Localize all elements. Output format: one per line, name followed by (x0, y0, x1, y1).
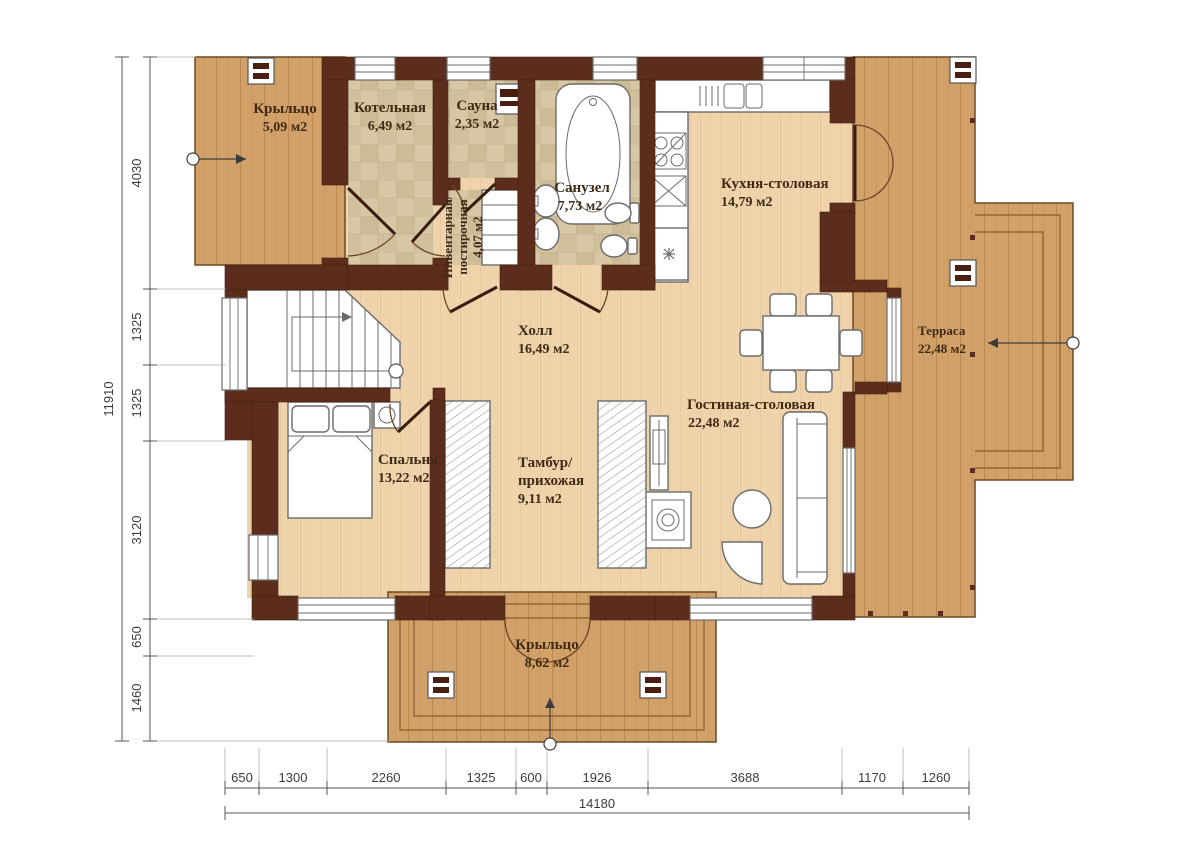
storage-shelves (482, 190, 518, 265)
dim-bottom-3: 1325 (467, 770, 496, 785)
window-bedroom-side (249, 535, 278, 580)
room-name: Котельная (354, 100, 426, 116)
wardrobe (445, 401, 490, 568)
window-dining-bay (887, 298, 901, 382)
column-marker (950, 57, 976, 83)
drying-rack (650, 416, 668, 490)
column-marker (640, 672, 666, 698)
column-marker (950, 260, 976, 286)
room-area: 5,09 м2 (263, 120, 308, 135)
room-name: Крыльцо (515, 637, 578, 653)
dim-bottom-1: 1300 (279, 770, 308, 785)
bed (288, 402, 372, 518)
room-area: 6,49 м2 (368, 119, 413, 134)
stairs-start-marker (389, 364, 403, 378)
window-living-bottom (690, 598, 812, 620)
dim-left-5: 1460 (129, 684, 144, 713)
room-area: 22,48 м2 (688, 416, 740, 431)
dim-bottom-7: 1170 (858, 770, 886, 785)
dim-bottom-5: 1926 (583, 770, 612, 785)
dining-chair (740, 330, 762, 356)
room-area: 16,49 м2 (518, 342, 570, 357)
room-name: Сауна (456, 98, 498, 114)
dim-bottom-6: 3688 (731, 770, 760, 785)
dim-bottom-0: 650 (231, 770, 253, 785)
dim-bottom-4: 600 (520, 770, 542, 785)
dim-left-0: 4030 (129, 159, 144, 188)
sofa (783, 412, 827, 584)
dim-bottom-total: 14180 (579, 796, 615, 811)
room-area: 13,22 м2 (378, 471, 430, 486)
toilet (605, 203, 639, 223)
dining-chair (806, 370, 832, 392)
dining-chair (840, 330, 862, 356)
fridge (650, 228, 688, 280)
room-area: 4,07 м2 (470, 216, 485, 257)
room-area: 22,48 м2 (918, 341, 966, 356)
window-top-bathroom (593, 57, 637, 80)
bidet (601, 235, 637, 257)
room-name: Гостиная-столовая (687, 397, 815, 413)
window-bedroom-bottom (298, 598, 395, 620)
room-name: прихожая (518, 473, 584, 489)
dim-bottom-8: 1260 (922, 770, 951, 785)
dim-bottom-2: 2260 (372, 770, 401, 785)
room-name: Терраса (918, 323, 966, 338)
dim-left-total: 11910 (101, 381, 116, 416)
nightstand (374, 402, 400, 428)
dining-chair (806, 294, 832, 316)
dim-left-2: 1325 (129, 389, 144, 418)
floor-plan-page: Крыльцо 5,09 м2 Котельная 6,49 м2 Сауна … (0, 0, 1200, 848)
dining-chair (770, 294, 796, 316)
room-name: Инвентарная/ (440, 195, 455, 278)
dim-left-3: 3120 (129, 516, 144, 545)
room-name: постирочная (455, 199, 470, 274)
floor-plan-drawing: Крыльцо 5,09 м2 Котельная 6,49 м2 Сауна … (0, 0, 1200, 848)
room-name: Крыльцо (253, 101, 316, 117)
dim-left-1: 1325 (129, 313, 144, 342)
window-living-terrace (843, 448, 855, 573)
room-name: Санузел (554, 180, 610, 196)
wardrobe (598, 401, 646, 568)
room-area: 9,11 м2 (518, 492, 562, 507)
dining-chair (770, 370, 796, 392)
dim-left-4: 650 (129, 626, 144, 648)
pillow (333, 406, 370, 432)
column-marker (248, 58, 274, 84)
room-area: 7,73 м2 (558, 199, 603, 214)
pillow (292, 406, 329, 432)
dimensions-bottom: 650 1300 2260 1325 600 1926 3688 1170 12… (225, 748, 969, 820)
terrace-extension-deck (975, 203, 1073, 480)
window-top-sauna (447, 57, 490, 80)
room-name: Холл (518, 323, 553, 339)
kitchen-counter-top (655, 80, 830, 112)
dining-table (763, 316, 839, 370)
window-top-kitchen (763, 57, 845, 80)
column-marker (428, 672, 454, 698)
room-area: 14,79 м2 (721, 195, 773, 210)
stove-fireplace (645, 492, 691, 548)
window-top-boiler (355, 57, 395, 80)
coffee-table (733, 490, 771, 528)
room-name: Спальня (378, 452, 438, 468)
room-area: 2,35 м2 (455, 117, 500, 132)
room-name: Кухня-столовая (721, 176, 829, 192)
room-area: 8,62 м2 (525, 656, 570, 671)
room-name: Тамбур/ (518, 455, 573, 471)
window-stairs (222, 298, 247, 390)
